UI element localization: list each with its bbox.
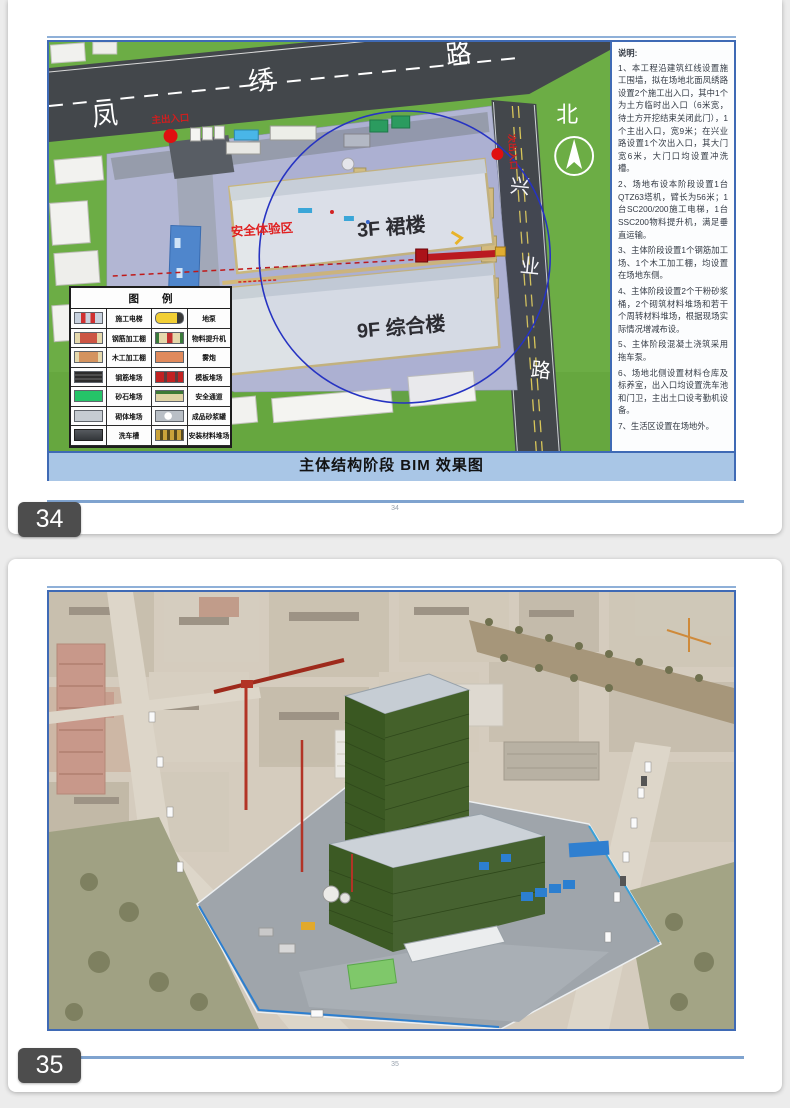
safety-passage-icon [155, 390, 184, 402]
document-viewer[interactable]: 凤 绣 路 兴 业 路 [0, 0, 790, 1108]
legend-label: 木工加工棚 [107, 348, 152, 368]
legend-icon-masonry-yard [71, 407, 107, 427]
legend-icon-wash-trough [71, 426, 107, 446]
legend-label: 砌体堆场 [107, 407, 152, 427]
legend-icon-material-hoist [152, 329, 188, 349]
legend-table: 图 例 施工电梯 地泵 钢筋加工棚 物料提升机 木工加工棚 [69, 286, 232, 448]
legend-label: 砂石堆场 [107, 387, 152, 407]
rebar-yard-icon [74, 371, 103, 383]
ground-pump-icon [155, 312, 184, 324]
slide-footer-number: 34 [8, 505, 782, 512]
note-item: 3、主体阶段设置1个钢筋加工场、1个木工加工棚，均设置在场地东侧。 [618, 244, 728, 282]
legend-icon-rebar-shed [71, 329, 107, 349]
legend-icon-formwork-yard [152, 368, 188, 388]
legend-label: 钢筋堆场 [107, 368, 152, 388]
legend-label: 地泵 [188, 309, 230, 329]
legend-icon-mortar-tank [152, 407, 188, 427]
note-item: 7、生活区设置在场地外。 [618, 420, 728, 433]
legend-icon-ground-pump [152, 309, 188, 329]
note-item: 6、场地北侧设置材料仓库及标养室，出入口均设置洗车池和门卫，主出土口设考勤机设备… [618, 367, 728, 417]
legend-label: 物料提升机 [188, 329, 230, 349]
legend-label: 钢筋加工棚 [107, 329, 152, 349]
construction-elevator-icon [74, 312, 103, 324]
north-label: 北 [556, 102, 578, 127]
material-hoist-icon [155, 332, 184, 344]
legend-label: 雾炮 [188, 348, 230, 368]
legend-icon-construction-elevator [71, 309, 107, 329]
masonry-yard-icon [74, 410, 103, 422]
legend-label: 洗车槽 [107, 426, 152, 446]
notes-title: 说明: [618, 47, 728, 60]
pdf-page-35: 35 35 [8, 559, 782, 1092]
carpentry-shed-icon [74, 351, 103, 363]
road-char-lu1: 路 [444, 42, 473, 70]
note-item: 5、主体阶段混凝土浇筑采用拖车泵。 [618, 338, 728, 363]
aerial-photo-svg [49, 592, 734, 1029]
legend-label: 成品砂浆罐 [188, 407, 230, 427]
legend-label: 安装材料堆场 [188, 426, 230, 446]
slide-35 [47, 590, 736, 1031]
road-char-xiu: 绣 [247, 65, 276, 97]
note-item: 1、本工程沿建筑红线设置施工围墙，拟在场地北面凤绣路设置2个施工出入口，其中1个… [618, 62, 728, 175]
fog-cannon-icon [155, 351, 184, 363]
legend-icon-install-material-yard [152, 426, 188, 446]
sand-yard-icon [74, 390, 103, 402]
note-item: 2、场地布设本阶段设置1台QTZ63塔机，臂长为56米；1台SC200/200施… [618, 178, 728, 241]
crane-radius-circle [259, 111, 550, 403]
mortar-tank-icon [155, 410, 184, 422]
page-number-badge: 35 [18, 1048, 81, 1083]
formwork-yard-icon [155, 371, 184, 383]
slide-caption: 主体结构阶段 BIM 效果图 [49, 451, 734, 481]
aerial-photo-figure [49, 592, 734, 1029]
road-char-feng: 凤 [91, 101, 120, 132]
slide-34: 凤 绣 路 兴 业 路 [47, 40, 736, 481]
slide-footer-number: 35 [8, 1061, 782, 1068]
legend-icon-safety-passage [152, 387, 188, 407]
pdf-page-34: 凤 绣 路 兴 业 路 [8, 0, 782, 534]
legend-label: 安全通道 [188, 387, 230, 407]
install-material-yard-icon [155, 429, 184, 441]
page-number-badge: 34 [18, 502, 81, 537]
legend-label: 模板堆场 [188, 368, 230, 388]
road-char-lu2: 路 [530, 358, 552, 383]
notes-panel: 说明: 1、本工程沿建筑红线设置施工围墙，拟在场地北面凤绣路设置2个施工出入口，… [610, 42, 734, 451]
legend-title: 图 例 [71, 288, 230, 309]
footer-rule [47, 500, 744, 503]
legend-icon-rebar-yard [71, 368, 107, 388]
site-plan-figure: 凤 绣 路 兴 业 路 [49, 42, 610, 451]
legend-icon-carpentry-shed [71, 348, 107, 368]
legend-icon-sand-yard [71, 387, 107, 407]
wash-trough-icon [74, 429, 103, 441]
rebar-shed-icon [74, 332, 103, 344]
legend-label: 施工电梯 [107, 309, 152, 329]
legend-icon-fog-cannon [152, 348, 188, 368]
note-item: 4、主体阶段设置2个干粉砂浆桶，2个砌筑材料堆场和若干个周转材料堆场，根据现场实… [618, 285, 728, 335]
footer-rule [47, 1056, 744, 1059]
